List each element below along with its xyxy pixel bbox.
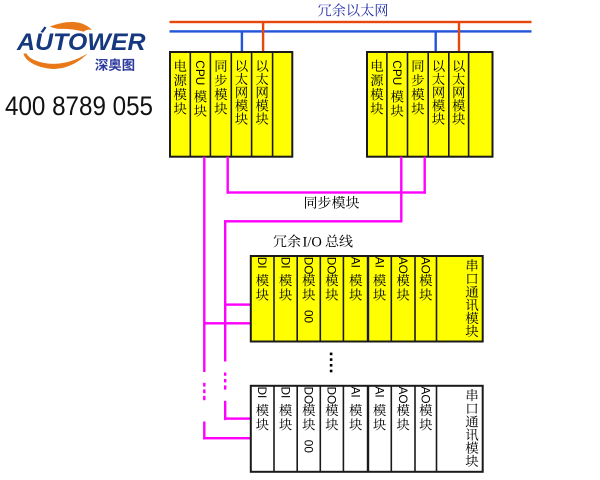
svg-text:I/O: I/O <box>303 234 322 250</box>
svg-text:AO: AO <box>396 387 410 404</box>
svg-text:CPU: CPU <box>390 60 404 85</box>
svg-text:AO: AO <box>396 257 410 274</box>
svg-text:DO: DO <box>302 257 316 275</box>
svg-text:AI: AI <box>349 257 363 268</box>
svg-text:AO: AO <box>419 257 433 274</box>
svg-text:00: 00 <box>302 440 316 454</box>
svg-text:AI: AI <box>372 387 386 398</box>
svg-text:DO: DO <box>302 387 316 405</box>
svg-text:DI: DI <box>278 257 292 269</box>
svg-text:AO: AO <box>419 387 433 404</box>
svg-text:00: 00 <box>302 310 316 324</box>
svg-text:CPU: CPU <box>193 60 207 85</box>
svg-text:400 8789 055: 400 8789 055 <box>5 91 153 121</box>
svg-text:AI: AI <box>372 257 386 268</box>
svg-text:DI: DI <box>278 387 292 399</box>
svg-text:DI: DI <box>255 387 269 399</box>
svg-text:AI: AI <box>349 387 363 398</box>
svg-text:DO: DO <box>325 387 339 405</box>
svg-text:DO: DO <box>325 257 339 275</box>
svg-text:AUTOWER: AUTOWER <box>16 29 146 56</box>
svg-text:DI: DI <box>255 257 269 269</box>
